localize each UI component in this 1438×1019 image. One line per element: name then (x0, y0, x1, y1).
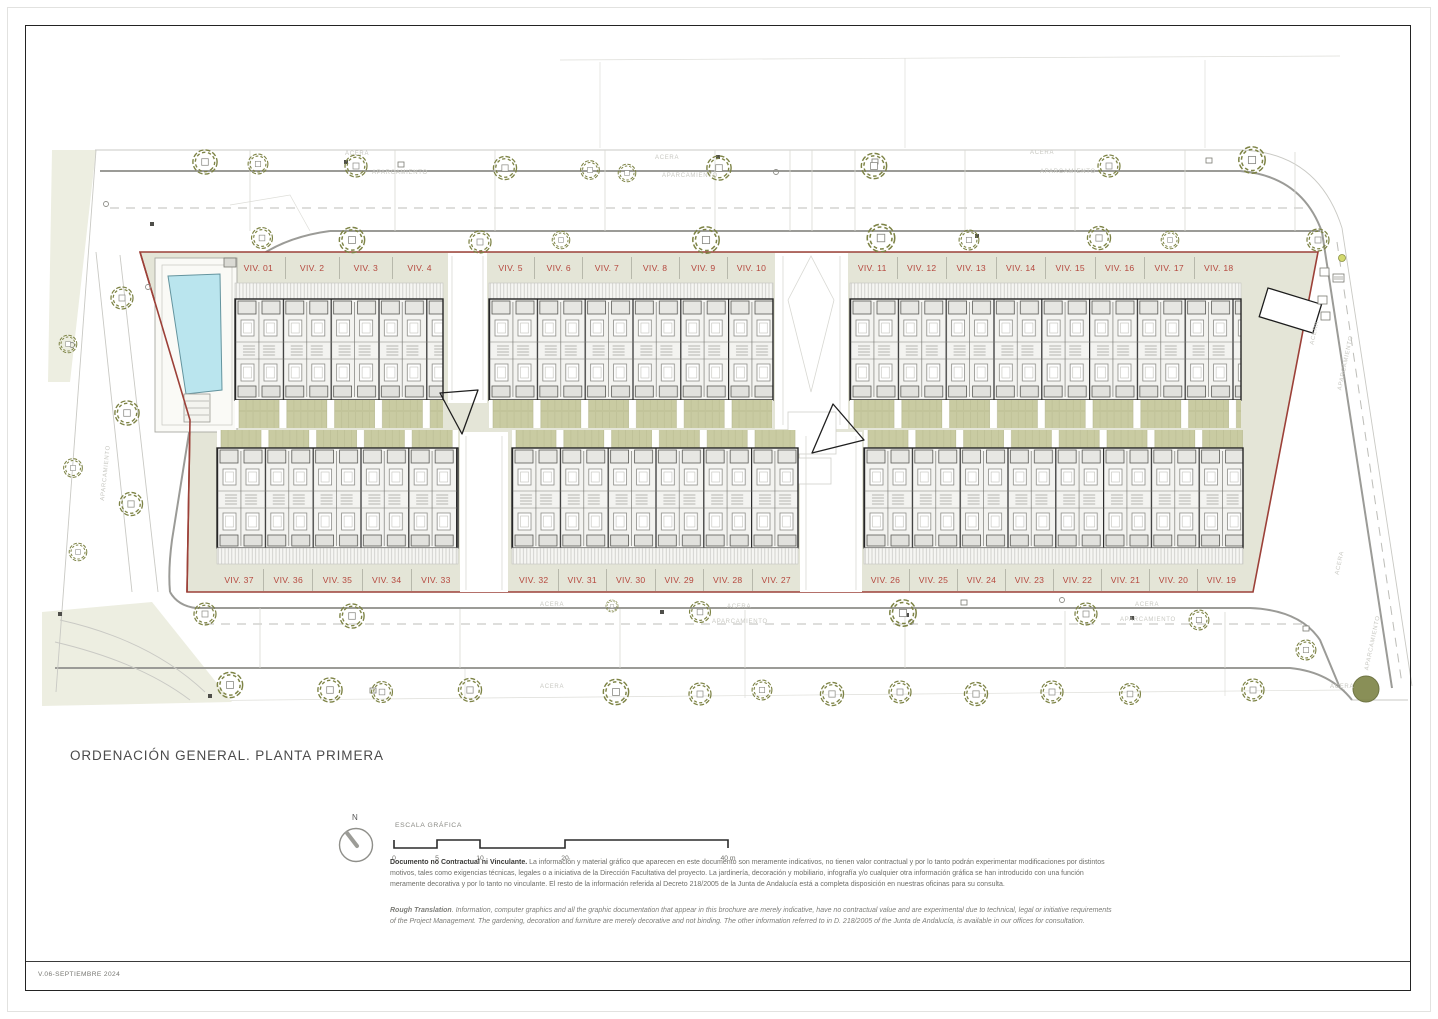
sheet-frame (25, 25, 1411, 991)
plan-sheet: VIV. 01VIV. 2VIV. 3VIV. 4 VIV. 5VIV. 6VI… (0, 0, 1438, 1019)
